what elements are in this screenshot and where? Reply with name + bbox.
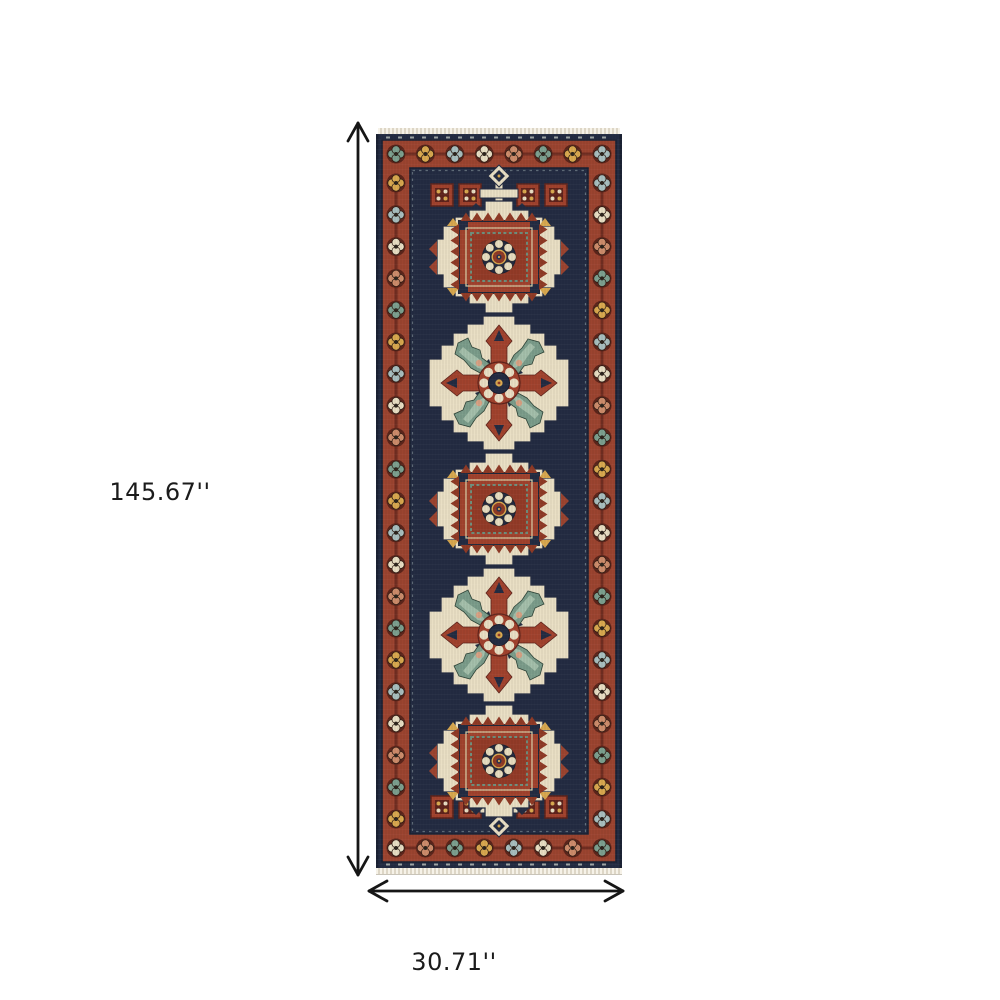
horizontal-dimension-arrow — [363, 878, 629, 904]
width-dimension-label: 30.71'' — [404, 948, 504, 976]
height-dimension-label: 145.67'' — [108, 478, 212, 506]
rug-fringe-bottom — [376, 868, 622, 875]
vertical-dimension-arrow — [345, 115, 371, 883]
weave-texture — [376, 134, 622, 868]
rug-dimension-diagram: 145.67'' 30.71'' — [0, 0, 1000, 1000]
rug-fringe-top — [378, 128, 620, 134]
rug-image — [376, 127, 622, 875]
